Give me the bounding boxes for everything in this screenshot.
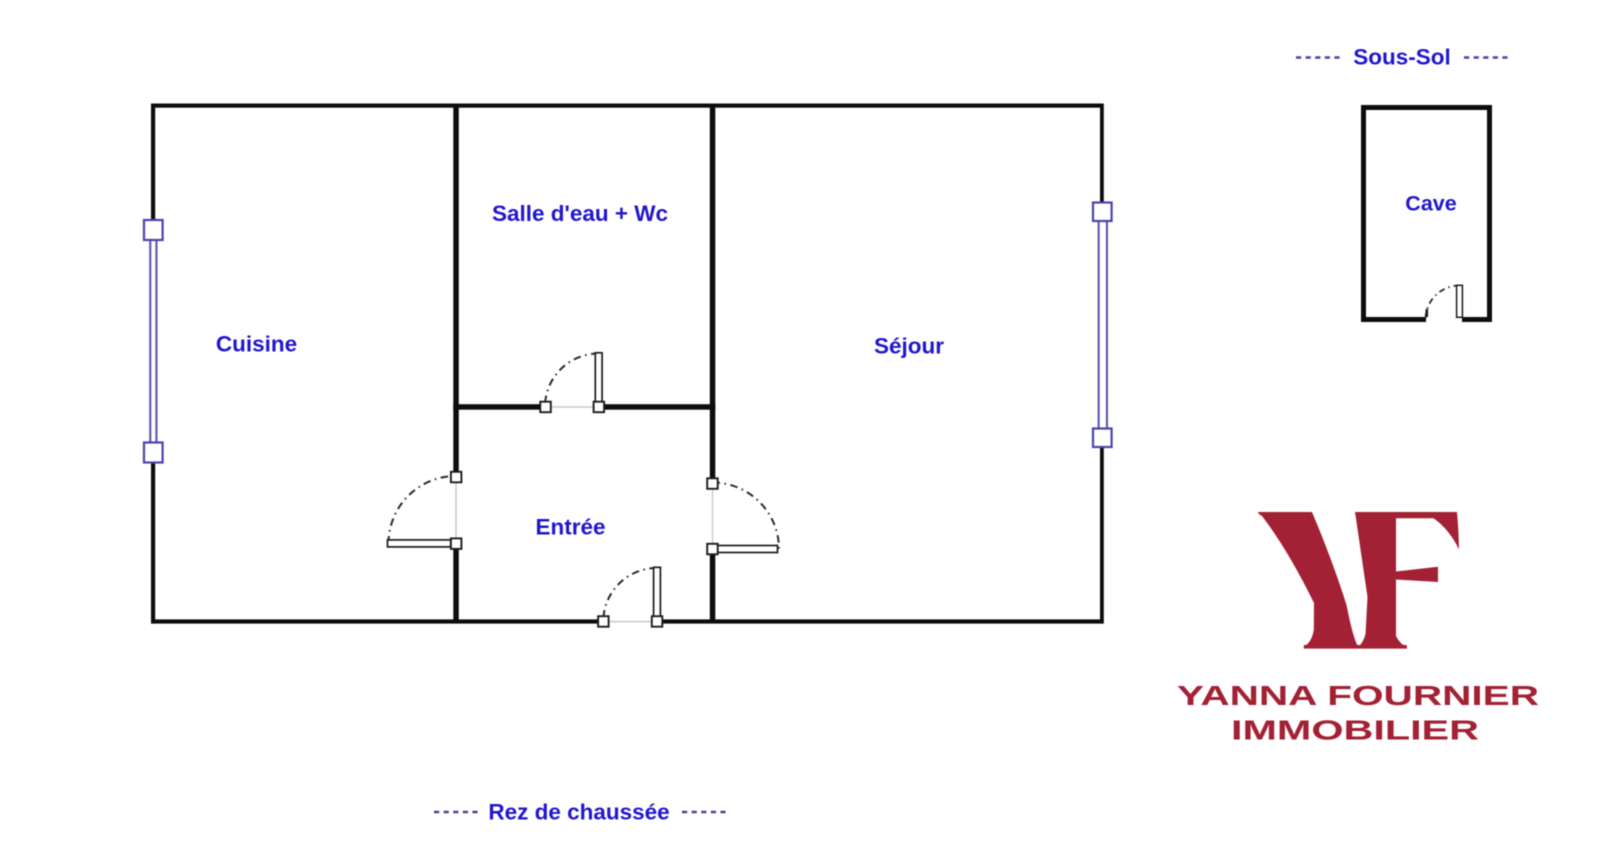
svg-text:Entrée: Entrée — [535, 515, 605, 540]
svg-text:IMMOBILIER: IMMOBILIER — [1231, 715, 1479, 746]
svg-text:Cuisine: Cuisine — [216, 332, 297, 357]
svg-text:Rez de chaussée: Rez de chaussée — [488, 800, 669, 825]
svg-text:Séjour: Séjour — [874, 334, 944, 359]
svg-text:YANNA FOURNIER: YANNA FOURNIER — [1177, 680, 1539, 711]
svg-text:Cave: Cave — [1405, 192, 1456, 216]
svg-text:Salle d'eau + Wc: Salle d'eau + Wc — [492, 201, 668, 226]
svg-text:Sous-Sol: Sous-Sol — [1353, 45, 1451, 70]
